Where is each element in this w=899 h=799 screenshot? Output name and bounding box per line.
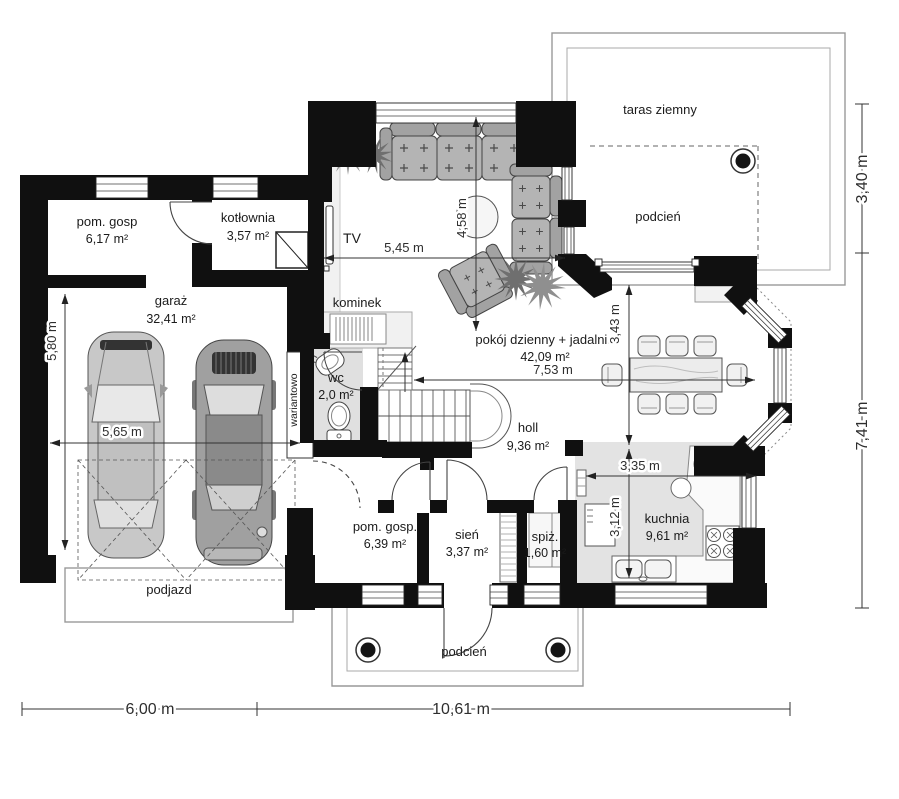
driveway-label: podjazd [146, 582, 192, 597]
room-name-spiz: spiż. [532, 529, 559, 544]
room-area-garaz: 32,41 m² [146, 312, 195, 326]
window [564, 227, 574, 254]
room-area-sien: 3,37 m² [446, 545, 488, 559]
dim-kitchen-depth: 3,12 m [607, 497, 622, 537]
room-name-pom-gosp2: pom. gosp. [353, 519, 417, 534]
room-name-pom-gosp: pom. gosp [77, 214, 138, 229]
window [376, 103, 516, 123]
window [615, 585, 707, 605]
room-name-kuchnia: kuchnia [645, 511, 691, 526]
room-name-sien: sień [455, 527, 479, 542]
door-vestibule [447, 460, 487, 500]
radiator [577, 470, 586, 496]
garage-cars [78, 332, 295, 580]
tv-label: TV [343, 230, 362, 246]
dining-set [602, 336, 747, 414]
car-right [192, 340, 276, 565]
floor-plan-svg: taras ziemny podcień podcień podjazd pom… [0, 0, 899, 799]
window [213, 177, 258, 198]
room-area-spiz: 1,60 m² [524, 546, 566, 560]
window [524, 585, 560, 605]
terrace-label: taras ziemny [623, 102, 697, 117]
bay-window-top [742, 298, 787, 343]
room-name-garaz: garaż [155, 293, 188, 308]
dim-interior-width: 7,53 m [533, 362, 573, 377]
dim-side-bottom: 7,41 m [854, 402, 871, 451]
door-boiler-room [170, 202, 212, 244]
bay-window-mid [774, 348, 786, 403]
dim-dining-depth: 3,43 m [607, 304, 622, 344]
window [418, 585, 442, 605]
dim-total-left: 6,00 m [126, 701, 175, 718]
dim-garage-depth: 5,80 m [44, 321, 59, 361]
dim-side-top: 3,40 m [854, 155, 871, 204]
room-area-kotlownia: 3,57 m² [227, 229, 269, 243]
dining-table [630, 358, 722, 392]
room-area-kuchnia: 9,61 m² [646, 529, 688, 543]
hall-wardrobe [500, 511, 517, 582]
door-pantry [534, 467, 567, 500]
room-name-kotlownia: kotłownia [221, 210, 276, 225]
dim-kitchen-width: 3,35 m [620, 458, 660, 473]
dim-living-depth: 4,58 m [454, 198, 469, 238]
room-name-living: pokój dzienny + jadalnia [475, 332, 615, 347]
boiler [276, 232, 308, 268]
toilet [327, 402, 351, 442]
window [742, 476, 756, 528]
door-variant-dashed [313, 461, 360, 508]
terrace-outline [552, 33, 845, 285]
window [562, 167, 572, 200]
room-area-pom-gosp2: 6,39 m² [364, 537, 406, 551]
variant-label: wariantowo [288, 373, 300, 427]
room-name-holl: holl [518, 420, 538, 435]
window [362, 585, 404, 605]
floor-plan-canvas: taras ziemny podcień podcień podjazd pom… [0, 0, 899, 799]
window [490, 585, 508, 605]
dim-garage-width: 5,65 m [102, 424, 142, 439]
dim-living-width: 5,45 m [384, 240, 424, 255]
room-area-wc: 2,0 m² [318, 388, 353, 402]
room-area-holl: 9,36 m² [507, 439, 549, 453]
fireplace [330, 314, 386, 344]
dim-total-right: 10,61 m [432, 701, 490, 718]
porch-top-label: podcień [635, 209, 681, 224]
terrace-slider [595, 259, 699, 272]
entrance-opening [444, 583, 492, 608]
room-area-pom-gosp: 6,17 m² [86, 232, 128, 246]
car-left [84, 332, 168, 558]
kitchen-sink [612, 556, 676, 582]
room-name-wc: wc [327, 370, 344, 385]
window [96, 177, 148, 198]
porch-bottom-label: podcień [441, 644, 487, 659]
fireplace-label: kominek [333, 295, 382, 310]
stairs [374, 346, 511, 448]
bay-window-bottom [745, 406, 790, 451]
